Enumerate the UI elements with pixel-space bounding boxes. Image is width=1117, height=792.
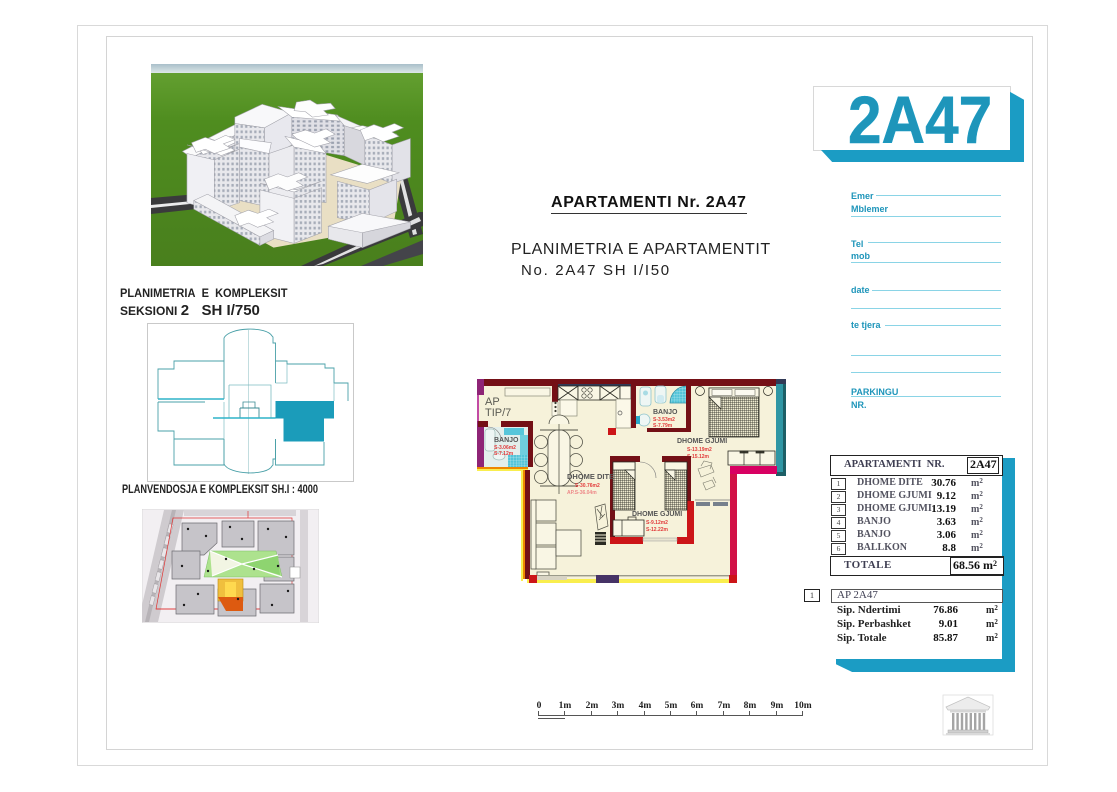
svg-text:S-12.22m: S-12.22m (646, 527, 669, 533)
svg-text:TIP/7: TIP/7 (485, 407, 511, 419)
svg-text:DHOME GJUMI: DHOME GJUMI (677, 438, 727, 445)
svg-text:AP.S-36.04m: AP.S-36.04m (567, 490, 597, 496)
svg-text:BANJO: BANJO (494, 437, 519, 444)
svg-text:S-9.12m2: S-9.12m2 (646, 520, 668, 526)
svg-text:BANJO: BANJO (653, 409, 678, 416)
svg-text:S-7.79m: S-7.79m (653, 423, 673, 429)
svg-text:S-30.76m2: S-30.76m2 (575, 483, 600, 489)
svg-text:S-13.19m2: S-13.19m2 (687, 447, 712, 453)
svg-text:DHOME GJUMI: DHOME GJUMI (632, 511, 682, 518)
svg-text:DHOME DITE: DHOME DITE (567, 472, 614, 481)
svg-text:S-7.12m: S-7.12m (494, 451, 514, 457)
